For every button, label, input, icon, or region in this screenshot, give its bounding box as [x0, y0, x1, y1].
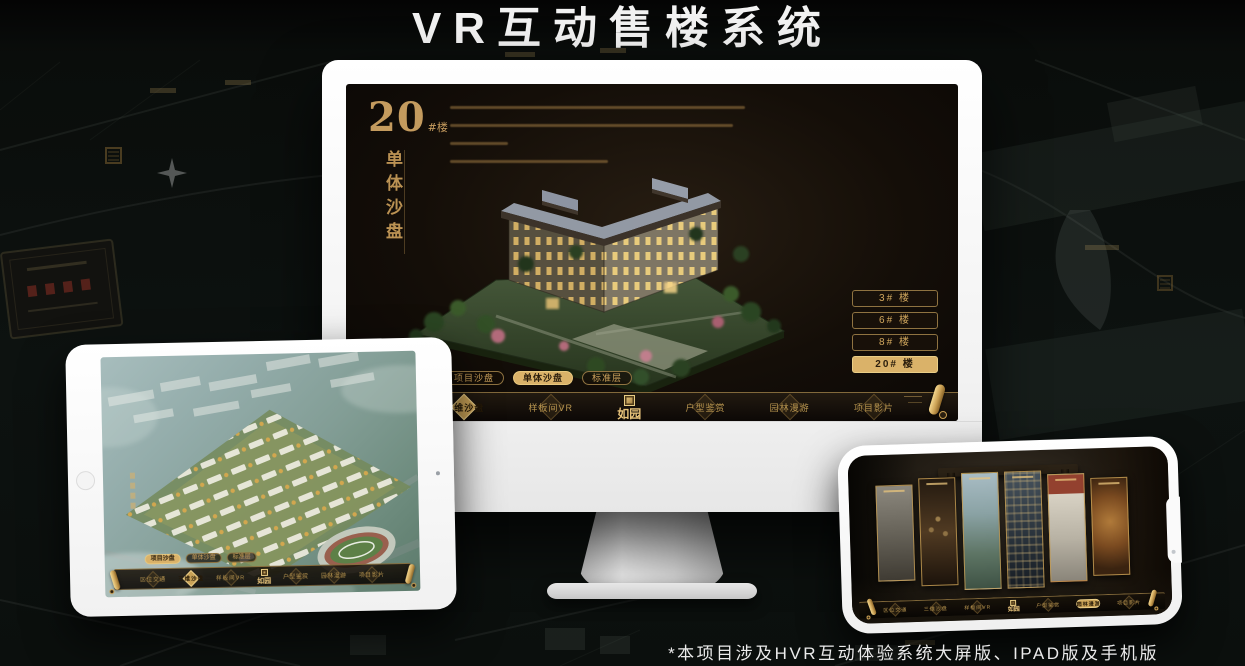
monitor-stand-base [547, 583, 757, 599]
phone-screen: 区位交通 三维沙盘 样板间VR 如园 户型鉴赏 园林漫游 项目影片 [847, 446, 1172, 624]
brand-logo[interactable]: 如园 [617, 395, 641, 420]
camera-icon [1172, 550, 1176, 554]
scroll-icon[interactable] [1144, 588, 1159, 610]
gallery-panel[interactable] [1090, 477, 1130, 576]
tab-standard-floor[interactable]: 标准层 [582, 371, 632, 385]
phone-notch [1166, 497, 1182, 563]
tab-project-sandbox[interactable]: 项目沙盘 [145, 554, 181, 565]
nav-item-3d-sandbox[interactable]: 三维沙盘 [178, 574, 204, 583]
tab-single-building-sandbox[interactable]: 单体沙盘 [186, 553, 222, 564]
page: VR互动售楼系统 20#楼 单体沙盘 [0, 0, 1245, 666]
gallery-panel-row [848, 467, 1158, 594]
nav-item-project-film[interactable]: 项目影片 [1117, 598, 1141, 606]
ipad-device: 项目沙盘 单体沙盘 标准层 区位交通 三维沙盘 样板间VR 如园 户型鉴赏 园林… [65, 337, 457, 617]
floor-button-8[interactable]: 8# 楼 [852, 334, 938, 351]
scroll-icon[interactable] [108, 568, 125, 594]
nav-item-location-traffic[interactable]: 区位交通 [140, 575, 166, 584]
brand-emblem-icon [1010, 599, 1016, 605]
nav-item-garden-roam[interactable]: 园林漫游 [321, 571, 347, 580]
nav-item-showroom-vr[interactable]: 样板间VR [964, 603, 991, 611]
floor-button-20[interactable]: 20# 楼 [852, 356, 938, 373]
scroll-icon[interactable] [401, 562, 418, 588]
nav-item-project-film[interactable]: 项目影片 [854, 401, 894, 414]
monitor-stand-neck [577, 511, 727, 589]
nav-item-garden-roam[interactable]: 园林漫游 [770, 401, 810, 414]
gallery-panel[interactable] [875, 485, 915, 582]
gallery-panel[interactable] [961, 472, 1002, 590]
gallery-panel[interactable] [1004, 470, 1045, 588]
phone-device: 区位交通 三维沙盘 样板间VR 如园 户型鉴赏 园林漫游 项目影片 [837, 436, 1183, 635]
nav-item-unit-gallery[interactable]: 户型鉴赏 [685, 401, 725, 414]
nav-item-showroom-vr[interactable]: 样板间VR [216, 573, 245, 582]
nav-item-unit-gallery[interactable]: 户型鉴赏 [1036, 601, 1060, 609]
nav-item-showroom-vr[interactable]: 样板间VR [528, 401, 573, 414]
nav-item-garden-roam[interactable]: 园林漫游 [1077, 600, 1101, 608]
home-button[interactable] [76, 471, 95, 490]
scroll-icon[interactable] [920, 382, 950, 420]
nav-item-location-traffic[interactable]: 区位交通 [883, 606, 907, 614]
page-title: VR互动售楼系统 [0, 0, 1245, 58]
floor-button-6[interactable]: 6# 楼 [852, 312, 938, 329]
floor-button-group: 3# 楼 6# 楼 8# 楼 20# 楼 [852, 290, 938, 378]
nav-item-project-film[interactable]: 项目影片 [359, 570, 385, 579]
nav-item-3d-sandbox[interactable]: 三维沙盘 [924, 604, 948, 612]
scroll-icon[interactable] [866, 597, 881, 619]
brand-logo[interactable]: 如园 [257, 569, 271, 584]
nav-item-unit-gallery[interactable]: 户型鉴赏 [283, 572, 309, 581]
tab-standard-floor[interactable]: 标准层 [227, 552, 257, 563]
footnote-text: *本项目涉及HVR互动体验系统大屏版、IPAD版及手机版 [668, 639, 1159, 664]
tab-single-building-sandbox[interactable]: 单体沙盘 [513, 371, 573, 385]
gallery-panel[interactable] [1047, 474, 1087, 583]
brand-emblem-icon [624, 395, 635, 406]
ipad-screen: 项目沙盘 单体沙盘 标准层 区位交通 三维沙盘 样板间VR 如园 户型鉴赏 园林… [100, 351, 420, 598]
camera-icon [436, 471, 440, 475]
brand-logo[interactable]: 如园 [1007, 599, 1019, 612]
floor-button-3[interactable]: 3# 楼 [852, 290, 938, 307]
gallery-panel[interactable] [918, 478, 958, 587]
tab-project-sandbox[interactable]: 项目沙盘 [444, 371, 504, 385]
view-mode-tabs: 项目沙盘 单体沙盘 标准层 [444, 371, 632, 385]
